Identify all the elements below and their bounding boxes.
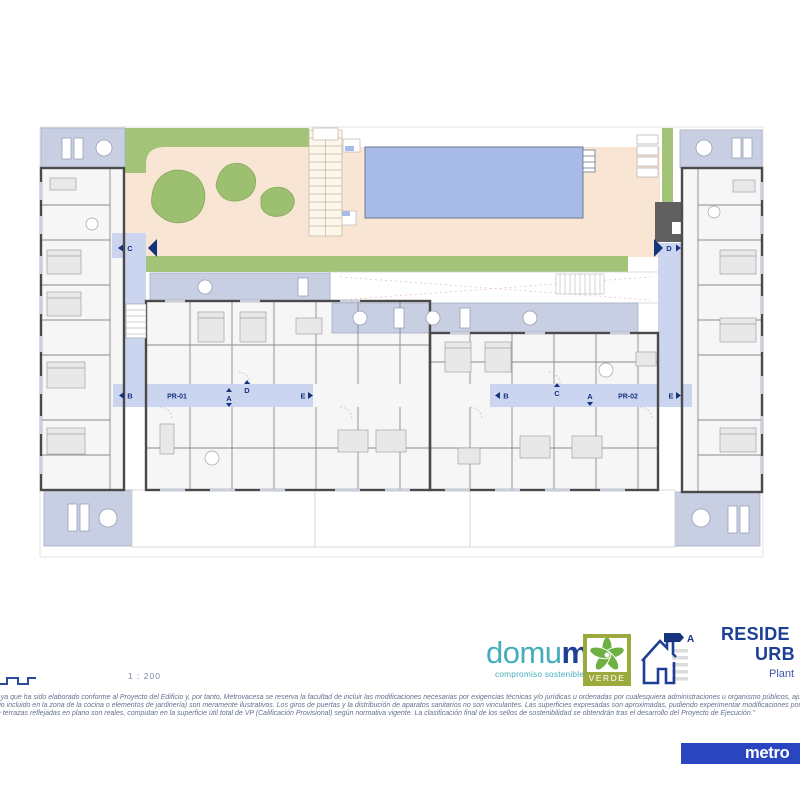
swimming-pool (365, 147, 583, 218)
floor-plan-document: C D B PR-01 A D E B C A PR-02 E (0, 0, 800, 800)
project-title-line3: Plant (769, 668, 800, 680)
graphic-scale-line (0, 672, 50, 688)
domum-tagline: compromiso sostenible (495, 669, 586, 679)
corridor-vertical-right (658, 243, 682, 385)
grass-strip-east (662, 128, 673, 204)
terrace-band-right (332, 303, 638, 333)
disclaimer-line-1: o, ya que ha sido elaborado conforme al … (0, 694, 800, 702)
elevator-cab (672, 222, 681, 234)
verde-certification-badge: VERDE (583, 634, 631, 686)
marker-left-d: D (244, 386, 250, 395)
deck-stair-hatch (556, 274, 604, 294)
marker-c-left: C (127, 244, 133, 253)
domum-logo: domum compromiso sostenible (486, 638, 586, 679)
marker-left-e: E (300, 392, 305, 401)
disclaimer-line-2: ario incluido en la zona de la cocina o … (0, 702, 800, 710)
courtyard-stairs (309, 128, 342, 236)
scale-label: 1 : 200 (128, 671, 161, 681)
energy-rating-letter: A (687, 634, 694, 645)
marker-pr02: PR-02 (618, 394, 638, 401)
deck-band (330, 272, 660, 303)
verde-label: VERDE (583, 673, 631, 683)
marker-d-right: D (666, 244, 672, 253)
project-title-line1: RESIDE (721, 624, 800, 644)
marker-right-e: E (668, 392, 673, 401)
marker-left-a: A (226, 394, 232, 403)
energy-arrow (664, 633, 684, 642)
energy-rating-icon: A (636, 629, 694, 689)
ground-strip (132, 490, 675, 547)
house-outline (642, 641, 676, 683)
energy-house-icon: A (636, 629, 694, 689)
marker-right-b: B (503, 392, 509, 401)
disclaimer-line-3: de terrazas reflejadas en plano son real… (0, 710, 800, 718)
pool-step-north-tab (345, 146, 354, 151)
legal-disclaimer: o, ya que ha sido elaborado conforme al … (0, 694, 800, 719)
marker-pr01: PR-01 (167, 394, 187, 401)
metrovacesa-wordmark: metro (745, 744, 789, 762)
project-title: RESIDE URB Plant (721, 624, 800, 680)
verde-leaf-icon (587, 638, 627, 672)
wing-stairs (126, 304, 146, 338)
marker-right-c: C (554, 389, 560, 398)
pool-step-south-tab (341, 211, 350, 216)
grass-strip-south (146, 256, 628, 272)
domum-wordmark: domum (486, 638, 586, 668)
pool-ladder (583, 150, 595, 172)
corridor-horizontal-left (113, 384, 313, 407)
project-title-line2: URB (755, 644, 800, 664)
marker-left-b: B (127, 392, 133, 401)
metrovacesa-brand-bar: metro (681, 743, 800, 764)
marker-right-a: A (587, 392, 593, 401)
